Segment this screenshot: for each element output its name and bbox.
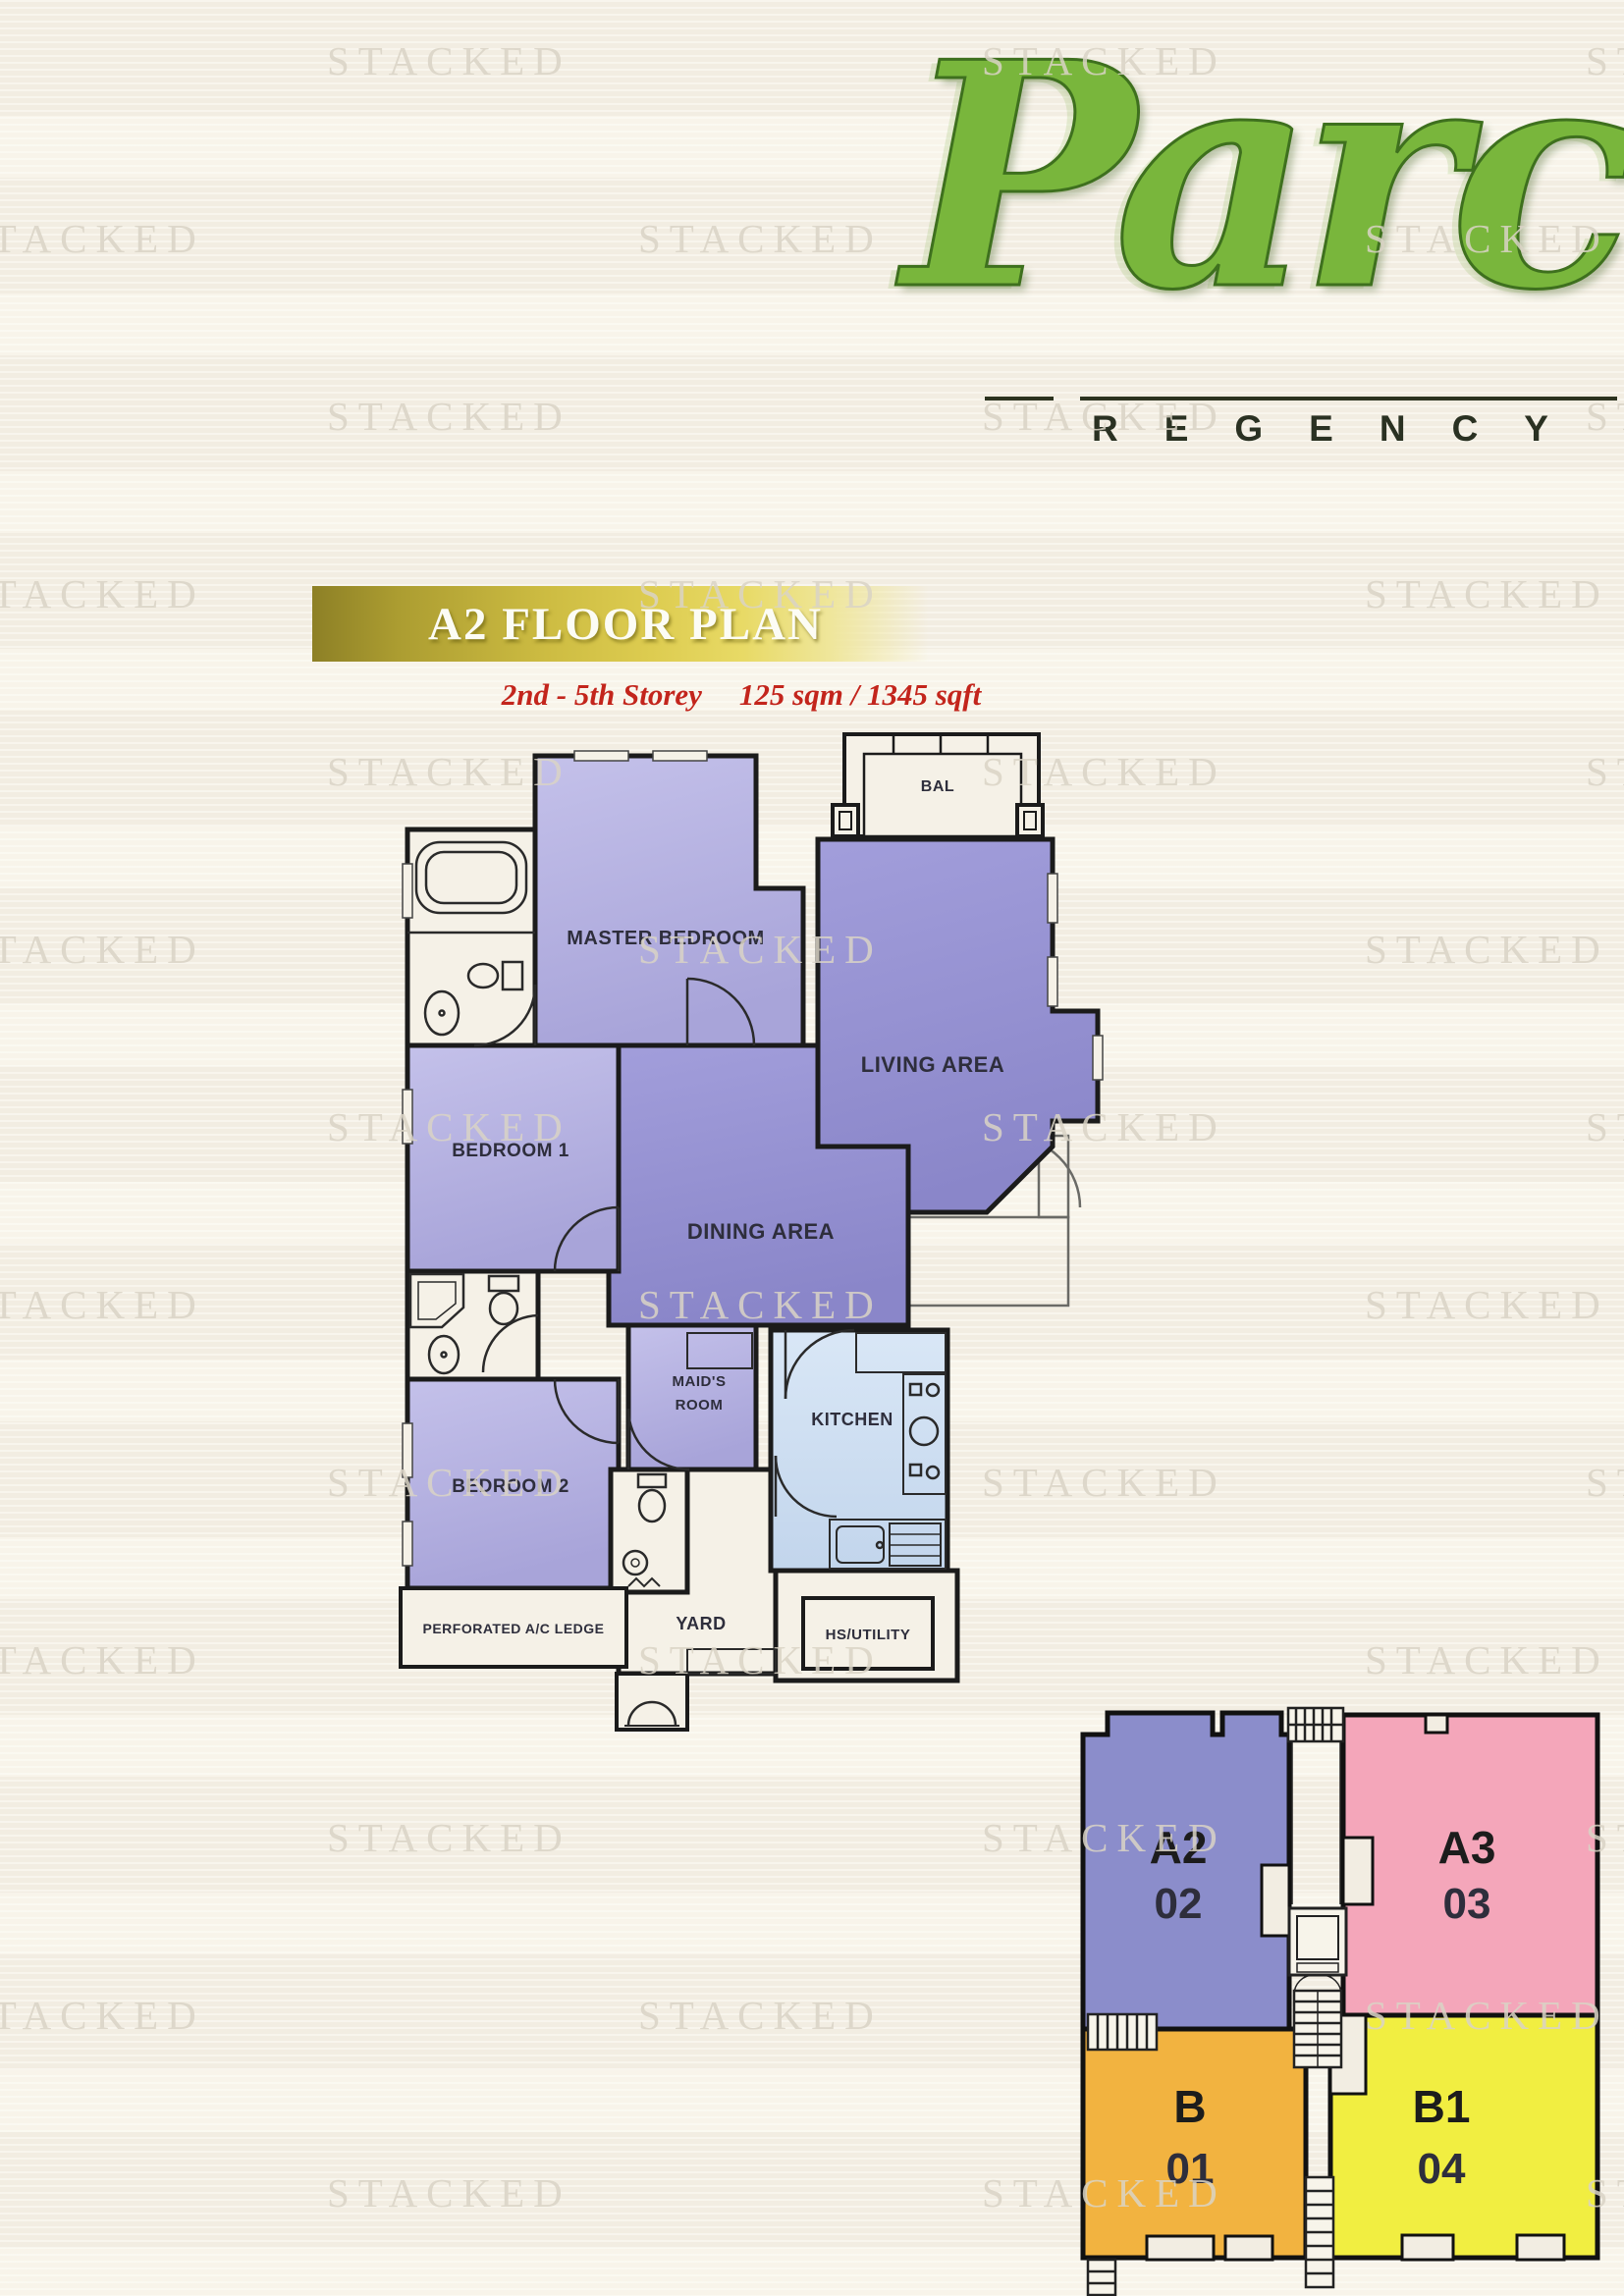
stacked-watermark: STACKED <box>1365 926 1609 973</box>
regency-wordmark: REGENCY <box>1092 408 1595 450</box>
key-plan: A2 02 A3 03 B 01 B1 04 <box>1065 1683 1624 2296</box>
stacked-watermark: STACKED <box>0 1636 205 1683</box>
ladder-bottom-left <box>1088 2260 1115 2296</box>
stacked-watermark: STACKED <box>0 1992 205 2039</box>
stacked-watermark: STACKED <box>1586 1103 1624 1150</box>
stacked-watermark: STACKED <box>0 1281 205 1328</box>
logo-rule-left <box>985 397 1054 400</box>
stacked-watermark: STACKED <box>1586 1459 1624 1506</box>
stacked-watermark: STACKED <box>327 1814 571 1861</box>
label-maids-1: MAID'S <box>673 1373 727 1390</box>
keyplan-a3-number: 03 <box>1443 1880 1491 1928</box>
keyplan-b-number: 01 <box>1166 2145 1215 2193</box>
label-master-bedroom: MASTER BEDROOM <box>567 928 764 949</box>
keyplan-a3-code: A3 <box>1438 1822 1496 1873</box>
stacked-watermark: STACKED <box>1365 1281 1609 1328</box>
storey-area-subtitle: 2nd - 5th Storey125 sqm / 1345 sqft <box>422 677 1060 713</box>
stacked-watermark: STACKED <box>327 2169 571 2216</box>
keyplan-a2-code: A2 <box>1150 1822 1208 1873</box>
label-yard: YARD <box>676 1614 726 1633</box>
storey-text: 2nd - 5th Storey <box>502 677 702 712</box>
stacked-watermark: STACKED <box>0 215 205 262</box>
brochure-page: Parc REGENCY A2 FLOOR PLAN 2nd - 5th Sto… <box>0 0 1624 2296</box>
label-dining: DINING AREA <box>687 1219 835 1244</box>
label-bal: BAL <box>921 778 954 795</box>
label-hs-utility: HS/UTILITY <box>826 1627 911 1643</box>
label-bedroom1: BEDROOM 1 <box>452 1141 569 1161</box>
label-kitchen: KITCHEN <box>811 1410 893 1429</box>
stacked-watermark: STACKED <box>1586 748 1624 795</box>
parc-logo-script: Parc <box>530 0 1624 407</box>
label-ac-ledge: PERFORATED A/C LEDGE <box>422 1621 604 1636</box>
keyplan-unit-b1 <box>1330 2015 1597 2258</box>
title-banner: A2 FLOOR PLAN <box>312 586 929 662</box>
label-living: LIVING AREA <box>861 1052 1004 1077</box>
stacked-watermark: STACKED <box>0 570 205 617</box>
page-title: A2 FLOOR PLAN <box>428 598 823 651</box>
stacked-watermark: STACKED <box>638 1992 883 2039</box>
keyplan-unit-b <box>1083 2029 1306 2258</box>
keyplan-b-code: B <box>1173 2081 1206 2132</box>
room-master-bedroom <box>535 756 803 1045</box>
logo-rule-right <box>1080 397 1617 400</box>
keyplan-b1-code: B1 <box>1413 2081 1471 2132</box>
stacked-watermark: STACKED <box>1365 1636 1609 1683</box>
keyplan-a2-number: 02 <box>1155 1880 1203 1928</box>
label-bedroom2: BEDROOM 2 <box>452 1476 569 1497</box>
floor-plan: BAL MASTER BEDROOM LIVING AREA BEDROOM 1… <box>383 717 1114 1757</box>
label-maids-2: ROOM <box>676 1397 724 1414</box>
stacked-watermark: STACKED <box>1365 570 1609 617</box>
keyplan-b1-number: 04 <box>1418 2145 1466 2193</box>
stacked-watermark: STACKED <box>0 926 205 973</box>
area-text: 125 sqm / 1345 sqft <box>739 677 981 712</box>
